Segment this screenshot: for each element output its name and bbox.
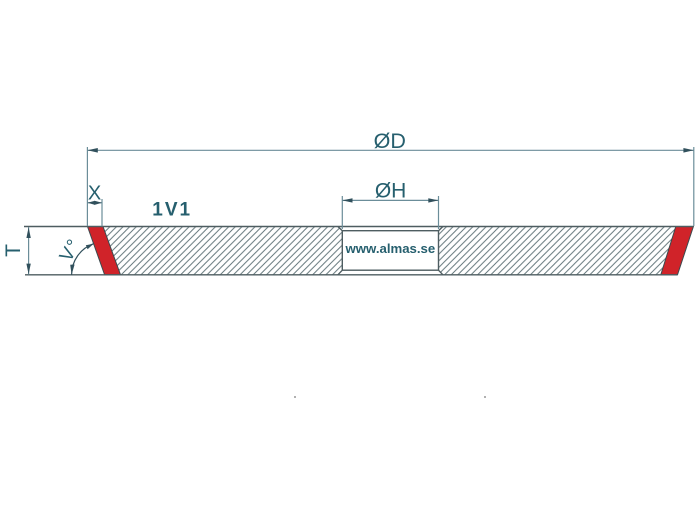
svg-text:ØH: ØH [375, 180, 407, 203]
svg-text:ØD: ØD [374, 129, 406, 153]
svg-text:T: T [2, 244, 25, 257]
svg-text:X: X [88, 183, 101, 205]
svg-text:1V1: 1V1 [152, 200, 192, 221]
svg-text:www.almas.se: www.almas.se [345, 241, 436, 256]
